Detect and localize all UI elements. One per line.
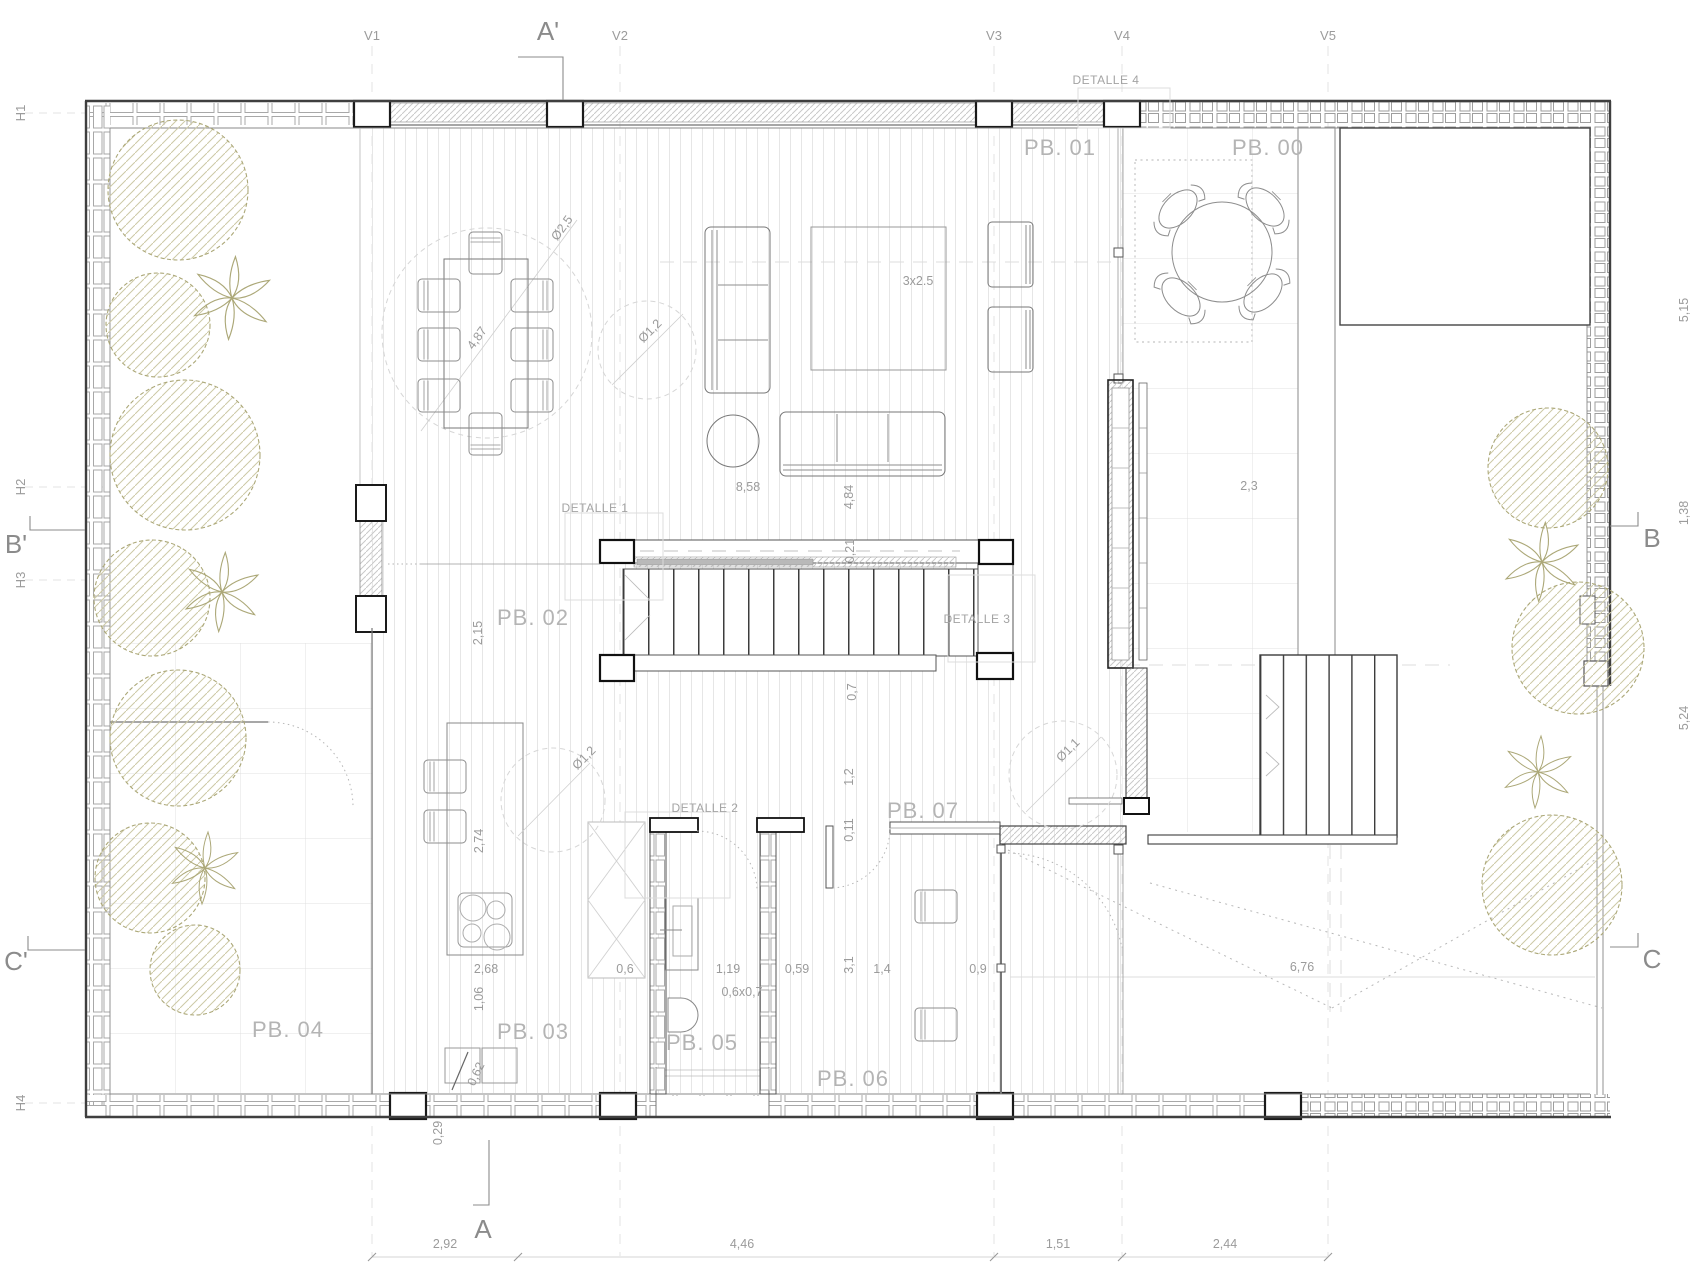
dim-k029: 0,29 [431,1121,445,1145]
dim-terrace-23: 2,3 [1240,479,1257,493]
dim-hall-14: 1,4 [873,962,890,976]
floor-plan-canvas: V1 V2 V3 V4 V5 H1 H2 H3 H4 A' A B' B C' … [0,0,1700,1271]
storage-room [1340,128,1590,325]
grid-label-v5: V5 [1320,28,1336,43]
terrace-pb00-tiles [1122,128,1298,680]
dim-hall-31: 3,1 [842,956,856,973]
stair-treads [623,569,978,656]
right-garden-trees [1482,408,1644,955]
dim-living-depth: 4,84 [842,485,856,509]
section-label-b-prime: B' [5,529,27,559]
dim-bottom-292: 2,92 [433,1237,457,1251]
grid-label-v1: V1 [364,28,380,43]
toilet [668,998,698,1032]
detail-label-2: DETALLE 2 [672,801,739,815]
west-window-frame-top [356,485,386,521]
door-leaf [826,826,833,888]
dim-right-138: 1,38 [1677,501,1691,525]
west-window-frame-bottom [356,596,386,632]
section-label-c-prime: C' [4,946,28,976]
bottom-dimension-line [368,1253,1332,1261]
dim-island-length: 2,74 [472,829,486,853]
terrace-wall-band [1298,128,1335,655]
top-wall-right-blocks [1140,101,1590,128]
dim-rug: 3x2.5 [903,274,934,288]
dim-hall-09: 0,9 [969,962,986,976]
dim-stair-width: 0,7 [845,683,859,700]
palm-icon [1504,736,1572,808]
dim-right-515: 5,15 [1677,298,1691,322]
room-label-pb06: PB. 06 [817,1066,889,1091]
grid-label-v4: V4 [1114,28,1130,43]
dim-shower: 0,6x0,7 [721,985,762,999]
grid-label-h1: H1 [13,105,28,122]
room-label-pb00: PB. 00 [1232,135,1304,160]
dim-living-width: 8,58 [736,480,760,494]
section-label-c: C [1643,944,1662,974]
room-label-pb05: PB. 05 [666,1030,738,1055]
top-wall-left-blocks [87,103,354,125]
dim-bath-06: 0,6 [616,962,633,976]
room-label-pb01: PB. 01 [1024,135,1096,160]
linen-closet [588,822,645,978]
grid-label-h4: H4 [13,1095,28,1112]
grid-label-v3: V3 [986,28,1002,43]
room-label-pb02: PB. 02 [497,605,569,630]
dim-bath-119: 1,19 [716,962,740,976]
dim-bath-059: 0,59 [785,962,809,976]
dim-terrace-676: 6,76 [1290,960,1314,974]
dim-hall-12: 1,2 [842,768,856,785]
floor-plan-svg: V1 V2 V3 V4 V5 H1 H2 H3 H4 A' A B' B C' … [0,0,1700,1271]
room-label-pb07: PB. 07 [887,798,959,823]
dim-stair-nosing: 0,21 [843,539,857,563]
detail-label-4: DETALLE 4 [1073,73,1140,87]
grid-label-h3: H3 [13,572,28,589]
dim-bottom-244: 2,44 [1213,1237,1237,1251]
dim-island-width: 2,68 [474,962,498,976]
dim-bottom-151: 1,51 [1046,1237,1070,1251]
grid-label-h2: H2 [13,479,28,496]
room-label-pb04: PB. 04 [252,1017,324,1042]
dim-bottom-446: 4,46 [730,1237,754,1251]
section-label-b: B [1643,523,1660,553]
grid-label-v2: V2 [612,28,628,43]
west-wall-pier [360,521,382,597]
dim-k106: 1,06 [472,987,486,1011]
detail-label-1: DETALLE 1 [562,501,629,515]
bottom-wall-right-blocks [1300,1094,1610,1117]
dim-hall-011: 0,11 [842,818,856,841]
section-label-a: A [474,1214,492,1244]
dim-right-524: 5,24 [1677,706,1691,730]
room-label-pb03: PB. 03 [497,1019,569,1044]
dim-pb02-width: 2,15 [471,621,485,645]
section-label-a-prime: A' [537,16,559,46]
detail-label-3: DETALLE 3 [944,612,1011,626]
